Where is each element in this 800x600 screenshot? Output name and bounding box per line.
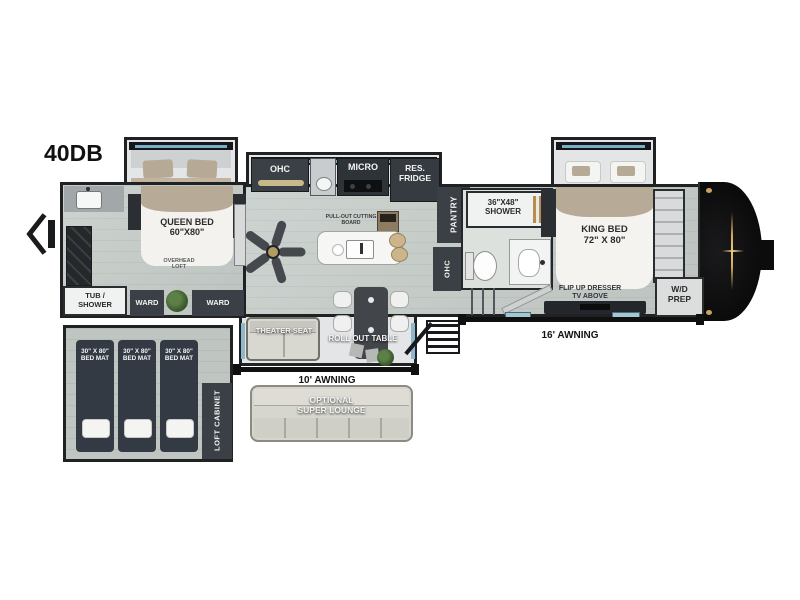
- microwave-cabinet: MICRO: [337, 158, 389, 196]
- brand-emblem-icon: [722, 250, 744, 252]
- kitchen-counter-sink: [310, 158, 336, 196]
- dining-chair: [390, 315, 409, 332]
- linen-cabinet: [66, 226, 92, 286]
- cap-light: [706, 310, 712, 315]
- tub-shower-label: TUB / SHOWER: [65, 292, 125, 309]
- queen-blanket: [141, 186, 233, 212]
- loft-pillow: [124, 419, 152, 438]
- king-bed-label: KING BED 72" X 80": [556, 225, 653, 247]
- rear-bath-counter: [64, 186, 124, 212]
- roll-out-table-label: ROLL OUT TABLE: [322, 334, 404, 343]
- bedroom-cabinet: [541, 189, 556, 237]
- queen-bed: QUEEN BED 60"X80": [141, 186, 233, 266]
- faucet-icon: [360, 243, 363, 254]
- model-label: 40DB: [44, 140, 103, 167]
- rear-ladder-icon: [24, 210, 60, 258]
- interior-steps: [462, 288, 502, 315]
- cap-light: [706, 188, 712, 193]
- bed-mat-label: 30" X 80" BED MAT: [76, 348, 114, 362]
- queen-bed-label: QUEEN BED 60"X80": [141, 217, 233, 238]
- bath-sink: [76, 191, 102, 209]
- fridge-label: RES. FRIDGE: [391, 164, 439, 184]
- loft-pillow: [82, 419, 110, 438]
- plant-icon: [377, 349, 394, 366]
- theater-seat: [246, 317, 320, 361]
- wardrobe-rear-left: WARD: [130, 290, 164, 316]
- slide-window-glass: [135, 145, 227, 148]
- nightstand: [128, 194, 142, 230]
- overhead-cabinet-bath: OHC: [433, 247, 461, 291]
- bar-stool: [389, 233, 406, 248]
- ward-label: WARD: [192, 298, 244, 307]
- ward-label: WARD: [130, 298, 164, 307]
- loft-bed-mat: 30" X 80" BED MAT: [118, 340, 156, 452]
- tub-shower: TUB / SHOWER: [63, 286, 127, 316]
- coffee-station: [377, 211, 399, 232]
- residential-fridge: RES. FRIDGE: [390, 158, 440, 202]
- overhead-loft-label: OVERHEAD LOFT: [146, 258, 212, 271]
- queen-pillow: [187, 159, 218, 179]
- dining-chair: [333, 291, 352, 308]
- floorplan-canvas: 40DB: [0, 0, 800, 600]
- floor-mat: [349, 343, 364, 358]
- slide-side-window: [241, 323, 245, 359]
- dining-chair: [390, 291, 409, 308]
- faucet-icon: [86, 187, 90, 191]
- king-bed: KING BED 72" X 80": [556, 187, 653, 289]
- super-lounge-label: OPTIONAL SUPER LOUNGE: [252, 396, 411, 416]
- front-wardrobe: [653, 189, 685, 283]
- micro-label: MICRO: [338, 162, 388, 172]
- loft-cabinet: LOFT CABINET: [202, 383, 232, 459]
- front-cap: [698, 182, 762, 321]
- bed-mat-label: 30" X 80" BED MAT: [160, 348, 198, 362]
- overhead-cabinet-kitchen: OHC: [251, 158, 309, 192]
- entry-steps: [426, 320, 460, 354]
- awning-16-bar: [462, 317, 702, 322]
- kitchen-sink: [316, 177, 332, 191]
- cutting-board-label: PULL-OUT CUTTING BOARD: [320, 215, 382, 227]
- toilet-icon: [465, 247, 499, 285]
- king-blanket: [556, 187, 653, 217]
- dining-chair: [333, 315, 352, 332]
- loft-bed-mat: 30" X 80" BED MAT: [76, 340, 114, 452]
- queen-pillow: [143, 159, 174, 179]
- plant-icon: [166, 290, 188, 312]
- tv-icon: [580, 304, 610, 310]
- bed-mat-label: 30" X 80" BED MAT: [118, 348, 156, 362]
- faucet-icon: [540, 260, 545, 265]
- bath-vanity: [509, 239, 551, 285]
- awning-10-bar: [236, 367, 418, 372]
- ohc-bath-label: OHC: [433, 247, 461, 291]
- awning-16-label: 16' AWNING: [510, 330, 630, 341]
- wd-prep-label: W/D PREP: [657, 285, 702, 305]
- loft-cabinet-label: LOFT CABINET: [202, 383, 232, 459]
- bar-stool: [391, 247, 408, 262]
- wd-prep-closet: W/D PREP: [655, 277, 704, 317]
- loft-pillow: [166, 419, 194, 438]
- loft-section: 30" X 80" BED MAT 30" X 80" BED MAT 30" …: [63, 325, 233, 462]
- cooktop: [344, 180, 382, 192]
- wardrobe-rear-right: WARD: [192, 290, 244, 316]
- flip-dresser-label: FLIP UP DRESSER TV ABOVE: [546, 285, 634, 301]
- ceiling-fan-icon: [244, 223, 302, 281]
- optional-super-lounge: OPTIONAL SUPER LOUNGE: [250, 385, 413, 442]
- mid-shower: 36"X48" SHOWER: [466, 191, 550, 228]
- loft-bed-mat: 30" X 80" BED MAT: [160, 340, 198, 452]
- theater-seat-label: THEATER SEAT: [250, 326, 318, 335]
- ohc-label: OHC: [252, 164, 308, 174]
